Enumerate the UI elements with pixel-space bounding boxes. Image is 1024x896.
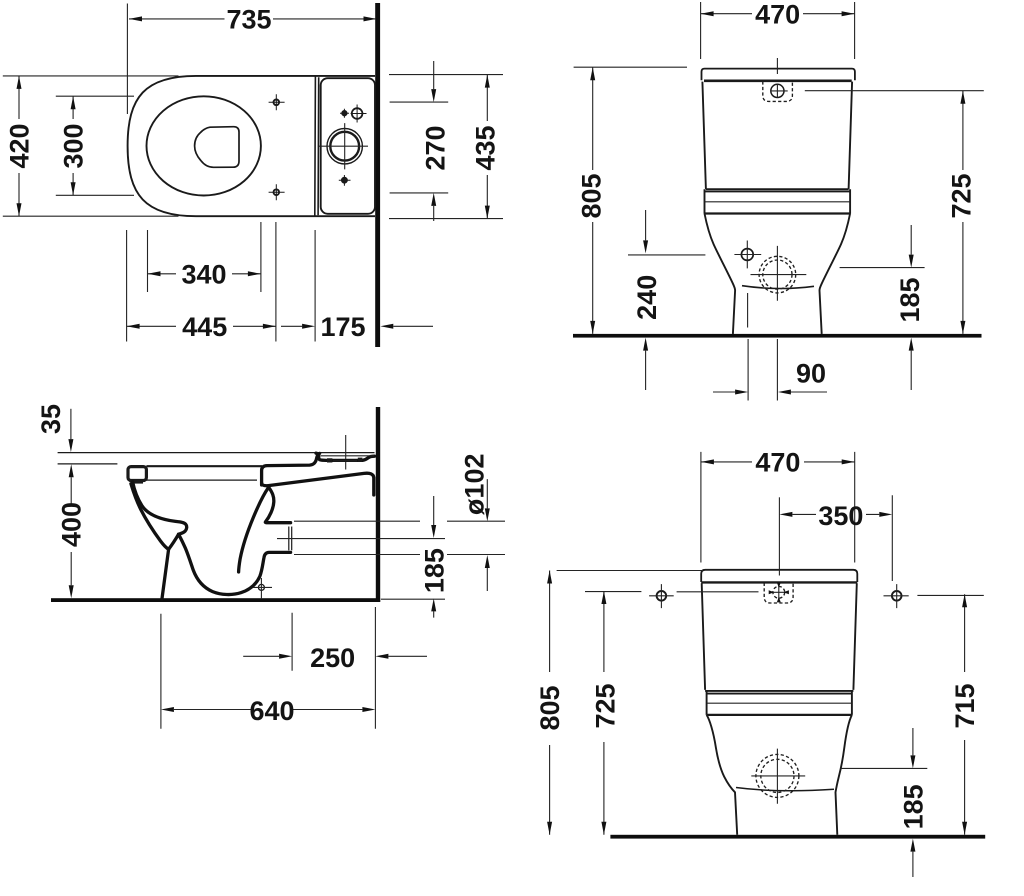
svg-text:340: 340 <box>181 259 226 289</box>
svg-text:640: 640 <box>249 696 294 726</box>
svg-text:725: 725 <box>947 173 977 218</box>
svg-text:420: 420 <box>4 123 34 168</box>
svg-text:735: 735 <box>226 5 271 35</box>
svg-text:175: 175 <box>320 312 365 342</box>
svg-text:ø102: ø102 <box>460 454 490 516</box>
svg-text:400: 400 <box>57 502 87 547</box>
svg-text:270: 270 <box>420 125 450 170</box>
svg-text:35: 35 <box>36 404 66 434</box>
svg-text:185: 185 <box>420 548 450 593</box>
svg-text:185: 185 <box>899 784 929 829</box>
svg-text:90: 90 <box>796 358 826 388</box>
svg-text:715: 715 <box>950 683 980 728</box>
svg-text:350: 350 <box>818 501 863 531</box>
svg-text:725: 725 <box>591 683 621 728</box>
svg-text:240: 240 <box>632 275 662 320</box>
svg-text:250: 250 <box>310 643 355 673</box>
svg-text:470: 470 <box>755 448 800 478</box>
svg-text:805: 805 <box>577 173 607 218</box>
svg-text:805: 805 <box>535 685 565 730</box>
svg-text:435: 435 <box>471 125 501 170</box>
svg-text:445: 445 <box>182 312 227 342</box>
svg-text:300: 300 <box>58 123 88 168</box>
svg-text:185: 185 <box>895 277 925 322</box>
svg-text:470: 470 <box>755 0 800 29</box>
